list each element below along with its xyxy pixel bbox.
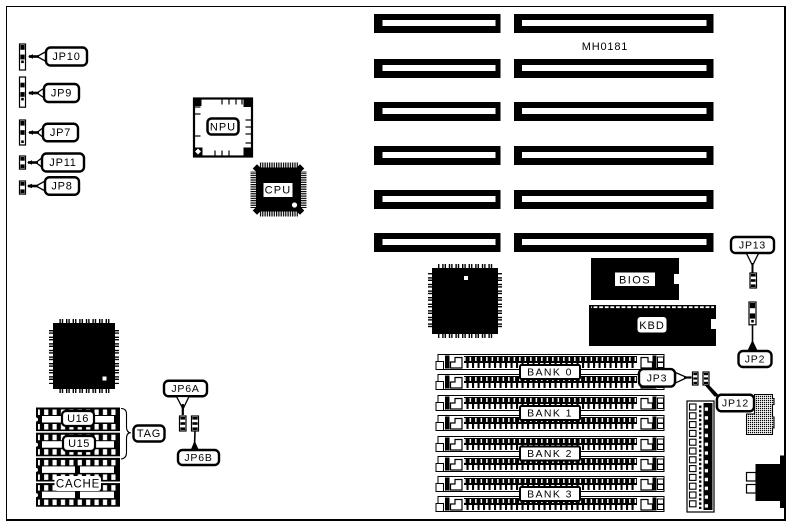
svg-text:JP12: JP12	[722, 398, 749, 410]
svg-text:JP6B: JP6B	[184, 452, 212, 464]
svg-text:BANK 3: BANK 3	[527, 489, 573, 501]
svg-text:BANK 0: BANK 0	[527, 367, 573, 379]
svg-text:JP7: JP7	[50, 127, 71, 139]
svg-text:JP13: JP13	[739, 240, 766, 252]
svg-text:BANK 2: BANK 2	[527, 448, 573, 460]
svg-text:U16: U16	[67, 413, 89, 425]
svg-text:BIOS: BIOS	[619, 274, 651, 286]
svg-text:JP9: JP9	[51, 88, 72, 100]
svg-text:JP11: JP11	[49, 157, 76, 169]
svg-text:JP8: JP8	[51, 181, 72, 193]
svg-text:NPU: NPU	[210, 121, 236, 133]
svg-text:MH0181: MH0181	[582, 41, 628, 53]
svg-text:KBD: KBD	[639, 320, 665, 332]
svg-text:CACHE: CACHE	[56, 479, 100, 491]
svg-text:JP10: JP10	[52, 51, 80, 63]
svg-text:JP2: JP2	[745, 354, 766, 366]
svg-text:TAG: TAG	[137, 428, 161, 440]
svg-text:BANK 1: BANK 1	[527, 408, 573, 420]
svg-text:JP6A: JP6A	[171, 383, 199, 395]
svg-text:U15: U15	[68, 438, 90, 450]
svg-text:CPU: CPU	[265, 185, 292, 197]
svg-text:JP3: JP3	[647, 372, 668, 384]
